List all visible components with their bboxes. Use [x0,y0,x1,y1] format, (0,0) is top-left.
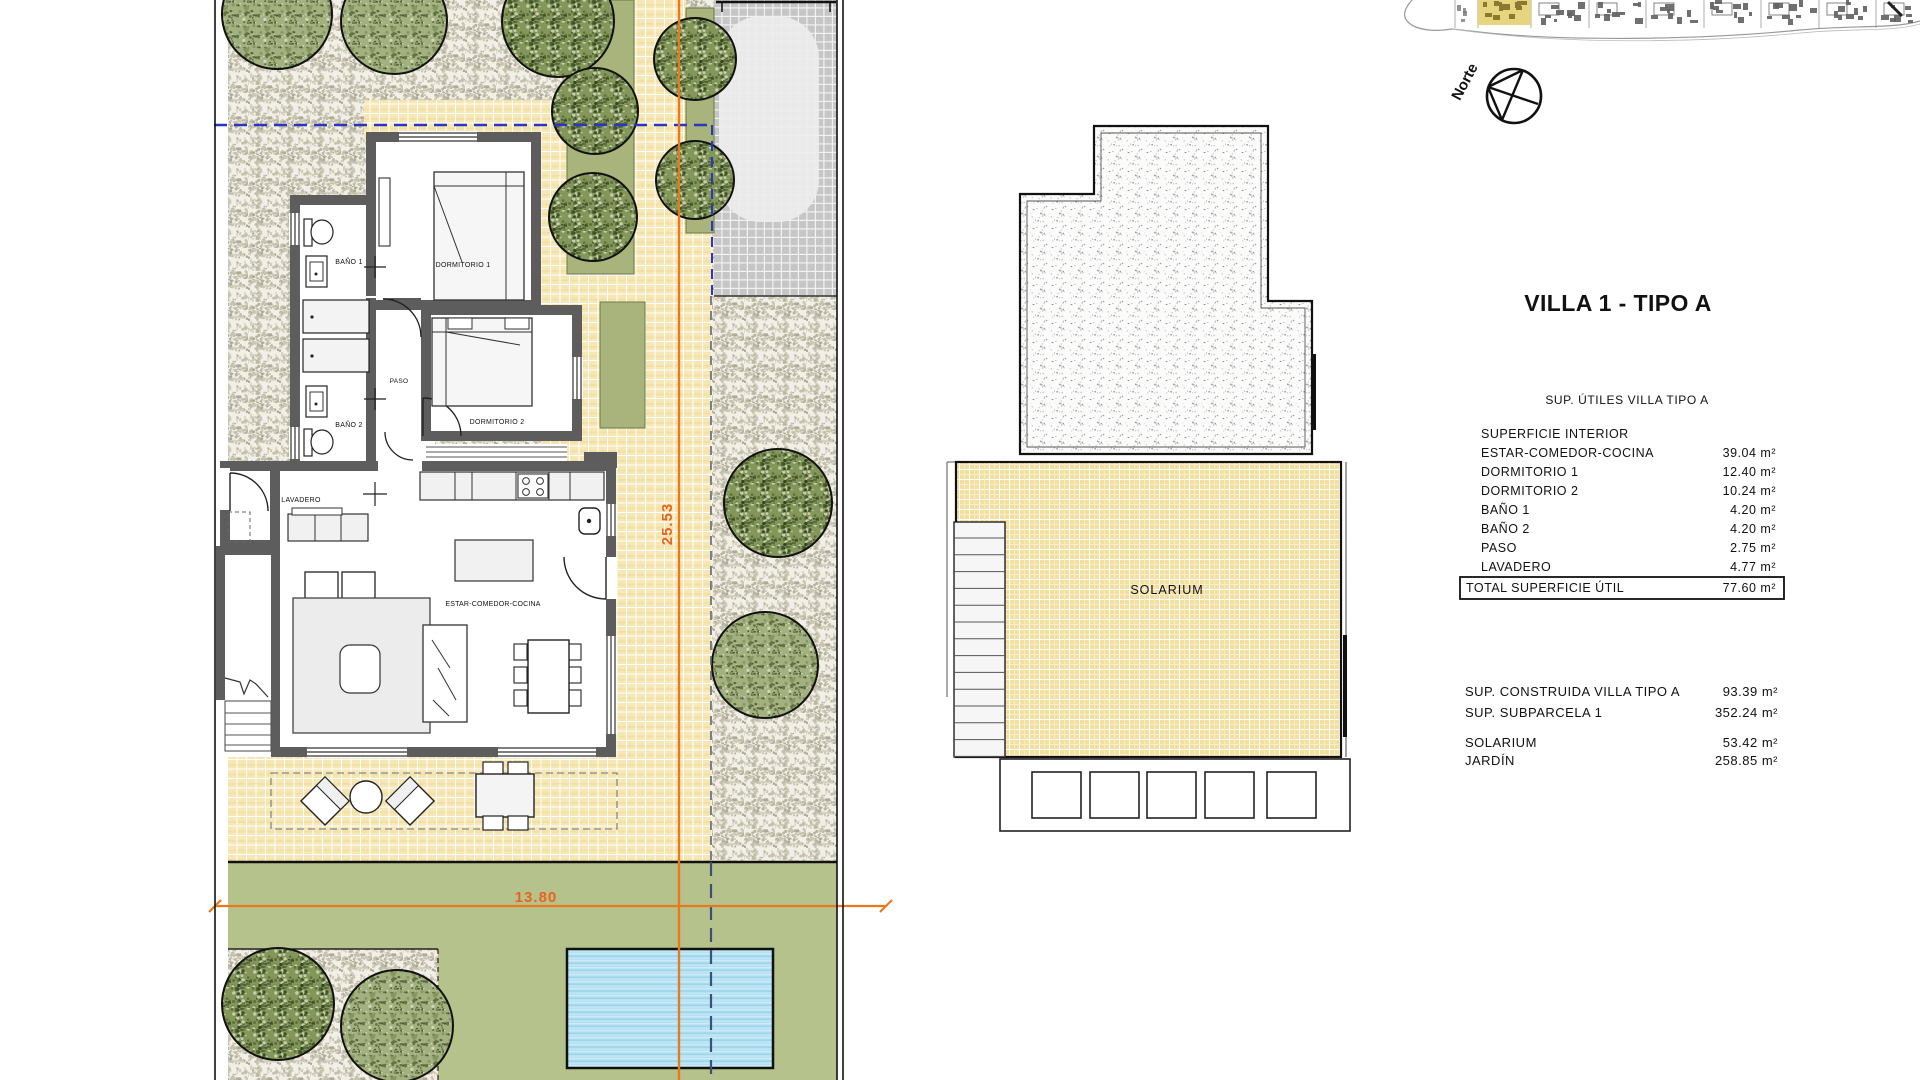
svg-text:4.20 m²: 4.20 m² [1730,503,1776,517]
svg-text:BAÑO 1: BAÑO 1 [335,257,362,266]
svg-text:13.80: 13.80 [515,889,558,906]
svg-text:LAVADERO: LAVADERO [281,497,321,504]
svg-text:DORMITORIO 2: DORMITORIO 2 [470,419,525,426]
svg-text:12.40 m²: 12.40 m² [1723,465,1776,479]
svg-text:4.77 m²: 4.77 m² [1730,560,1776,574]
svg-text:53.42 m²: 53.42 m² [1723,735,1778,750]
svg-text:SUP. ÚTILES VILLA TIPO A: SUP. ÚTILES VILLA TIPO A [1545,392,1708,407]
svg-text:352.24 m²: 352.24 m² [1715,705,1778,720]
svg-text:JARDÍN: JARDÍN [1465,753,1515,768]
svg-text:SUP. CONSTRUIDA VILLA TIPO A: SUP. CONSTRUIDA VILLA TIPO A [1465,684,1680,699]
svg-text:VILLA 1 - TIPO A: VILLA 1 - TIPO A [1524,290,1711,316]
svg-text:SUP. SUBPARCELA 1: SUP. SUBPARCELA 1 [1465,705,1602,720]
svg-text:25.53: 25.53 [659,503,676,546]
svg-text:BAÑO 2: BAÑO 2 [1481,522,1530,536]
svg-text:SOLARIUM: SOLARIUM [1465,735,1537,750]
svg-text:DORMITORIO 1: DORMITORIO 1 [436,262,491,269]
svg-text:BAÑO 1: BAÑO 1 [1481,503,1530,517]
svg-text:93.39 m²: 93.39 m² [1723,684,1778,699]
svg-text:DORMITORIO 1: DORMITORIO 1 [1481,465,1578,479]
svg-text:4.20 m²: 4.20 m² [1730,522,1776,536]
svg-text:SOLARIUM: SOLARIUM [1130,583,1203,597]
svg-text:39.04 m²: 39.04 m² [1723,446,1776,460]
svg-text:258.85 m²: 258.85 m² [1715,753,1778,768]
svg-text:77.60 m²: 77.60 m² [1723,581,1776,595]
svg-text:ESTAR-COMEDOR-COCINA: ESTAR-COMEDOR-COCINA [445,601,540,608]
svg-text:PASO: PASO [1481,541,1517,555]
svg-text:LAVADERO: LAVADERO [1481,560,1551,574]
svg-text:10.24 m²: 10.24 m² [1723,484,1776,498]
svg-text:2.75 m²: 2.75 m² [1730,541,1776,555]
svg-text:SUPERFICIE INTERIOR: SUPERFICIE INTERIOR [1481,427,1629,441]
svg-text:BAÑO 2: BAÑO 2 [335,420,362,429]
svg-text:DORMITORIO 2: DORMITORIO 2 [1481,484,1578,498]
svg-text:ESTAR-COMEDOR-COCINA: ESTAR-COMEDOR-COCINA [1481,446,1654,460]
svg-text:TOTAL SUPERFICIE ÚTIL: TOTAL SUPERFICIE ÚTIL [1466,580,1624,595]
svg-text:PASO: PASO [390,378,409,385]
